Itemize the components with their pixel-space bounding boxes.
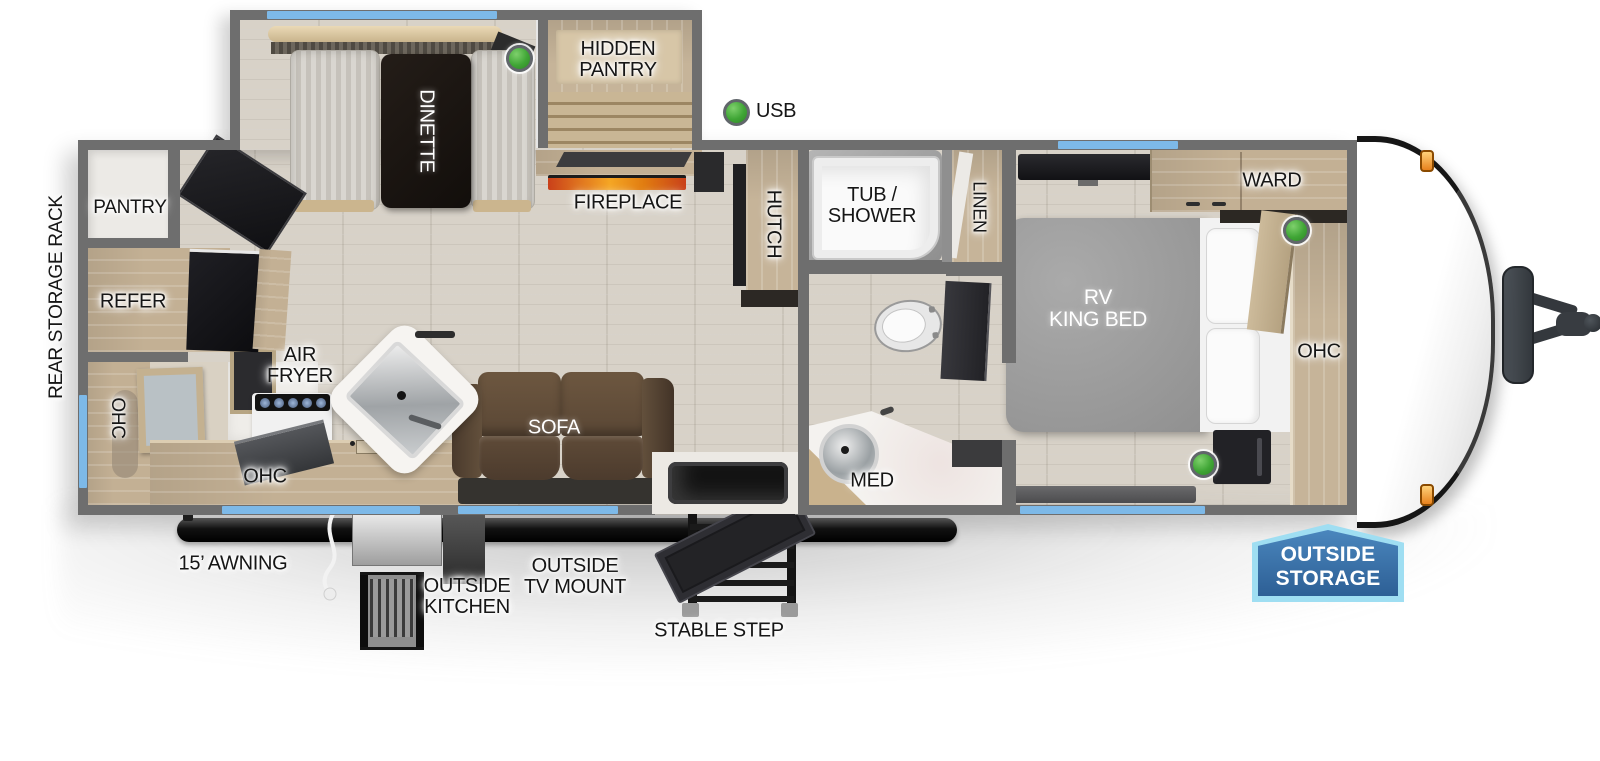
window-bedroom-top — [1058, 141, 1178, 149]
pantry-wall-right — [168, 148, 180, 243]
stable-step-label: STABLE STEP — [654, 621, 784, 642]
ohc-kitchen-label: OHC — [243, 467, 287, 488]
refrigerator — [186, 249, 261, 352]
slide-wall-right — [692, 10, 702, 150]
med-sink-drain — [841, 446, 849, 454]
king-bed-label: RV KING BED — [1049, 287, 1147, 331]
bedroom-tv — [1018, 154, 1156, 180]
window-kitchen-bottom — [222, 506, 420, 514]
marker-light-top — [1420, 150, 1434, 172]
ward-label: WARD — [1242, 171, 1301, 192]
usb-indicator-bed — [1190, 451, 1217, 478]
front-cap — [1357, 136, 1495, 528]
entry-step-well — [668, 462, 788, 504]
usb-indicator-dinette — [506, 45, 533, 72]
dinette-valance — [268, 26, 502, 42]
refer-wall-bottom — [88, 352, 188, 362]
slide-divider — [536, 20, 548, 148]
refer-label: REFER — [100, 292, 166, 313]
wall-front — [1347, 140, 1357, 515]
burner — [288, 398, 298, 408]
island-drain — [397, 391, 406, 400]
hutch-tv-strip — [733, 164, 746, 286]
fireplace-flame — [548, 175, 686, 190]
wall-top-left — [78, 140, 240, 150]
sofa-seat-right — [562, 436, 643, 480]
outside-kitchen-compartment-dark — [443, 510, 485, 584]
window-sofa-bottom — [458, 506, 618, 514]
bathroom-door — [940, 281, 991, 381]
dinette-bench-base — [294, 200, 374, 212]
hutch-base — [741, 290, 803, 307]
hidden-pantry-label: HIDDEN PANTRY — [579, 39, 656, 81]
griddle-slats — [370, 579, 414, 637]
stable-step-foot — [682, 603, 699, 617]
window-rear-side — [79, 395, 87, 488]
toilet-lid — [880, 306, 928, 346]
window-bedroom-bottom — [1020, 506, 1205, 514]
usb-indicator-ward — [1283, 217, 1310, 244]
rv-floorplan: DINETTE HIDDEN PANTRY PANTRY REFER OHC A… — [0, 0, 1600, 761]
fireplace-label: FIREPLACE — [574, 193, 682, 214]
ohc-bedroom-label: OHC — [1297, 342, 1341, 363]
bedroom-ohc-column — [1290, 223, 1350, 505]
slide-wall-left — [230, 10, 240, 150]
toilet-hinge — [929, 306, 936, 313]
outside-storage-badge-inner: OUTSIDE STORAGE — [1258, 530, 1398, 596]
tub-shower-label: TUB / SHOWER — [828, 185, 916, 227]
stable-step-rung — [690, 596, 794, 602]
marker-light-bottom — [1420, 484, 1434, 506]
shower-linen-wall — [942, 150, 952, 262]
bedroom-wall-lower — [1002, 440, 1016, 505]
outside-storage-label: OUTSIDE STORAGE — [1276, 543, 1381, 590]
wall-top-right — [692, 140, 1357, 150]
sofa-seat-left — [479, 436, 560, 480]
hitch-coupler-knob — [1584, 314, 1600, 332]
sofa-platform — [458, 478, 670, 504]
shower-wall-bottom — [806, 260, 946, 274]
entertainment-end-cabinet — [694, 152, 724, 192]
outside-kitchen-label: OUTSIDE KITCHEN — [424, 576, 511, 618]
window-dinette — [267, 11, 497, 19]
fireplace-shelf — [556, 152, 692, 167]
usb-indicator-legend — [723, 99, 750, 126]
air-fryer-label: AIR FRYER — [267, 345, 333, 387]
burner — [316, 398, 326, 408]
nightstand-handle — [1257, 438, 1262, 476]
outside-tv-mount-label: OUTSIDE TV MOUNT — [524, 556, 626, 598]
pantry-wall-bottom — [88, 238, 180, 248]
burner — [260, 398, 270, 408]
awning-label: 15’ AWNING — [179, 554, 288, 575]
ward-handle — [1212, 202, 1226, 206]
rear-storage-rack-label: REAR STORAGE RACK — [47, 177, 67, 417]
bedroom-bench — [1006, 486, 1196, 503]
toilet-hinge — [932, 332, 939, 339]
sofa-label: SOFA — [528, 418, 580, 439]
hitch-jack-bar — [1502, 266, 1534, 384]
ward-handle — [1186, 202, 1200, 206]
dinette-bench-base — [473, 200, 531, 212]
awning-cord — [300, 508, 370, 603]
ohc-rear-label: OHC — [107, 397, 127, 438]
bedroom-wall-upper — [1002, 148, 1016, 363]
stable-step-foot — [781, 603, 798, 617]
hutch-label: HUTCH — [763, 190, 784, 259]
dinette-bench-right — [471, 50, 535, 210]
burner — [274, 398, 284, 408]
med-label: MED — [850, 471, 894, 492]
awning-bar — [177, 518, 957, 542]
bedroom-nightstand — [1213, 430, 1271, 484]
linen-label: LINEN — [970, 181, 989, 233]
pantry-label: PANTRY — [93, 198, 167, 218]
range-burner-bar — [255, 394, 330, 411]
counter-faucet — [350, 441, 355, 446]
burner — [302, 398, 312, 408]
dinette-bench-left — [290, 50, 380, 210]
bedroom-doorway-cabinet — [952, 440, 1002, 467]
dinette-label: DINETTE — [416, 89, 437, 172]
island-handle — [415, 331, 455, 338]
hidden-pantry-shelves — [546, 92, 692, 148]
bedroom-tv-mount — [1078, 180, 1098, 186]
usb-label: USB — [756, 99, 796, 123]
bed-pillow — [1206, 328, 1260, 424]
pantry-room — [88, 150, 168, 240]
bath-wall-left — [798, 148, 809, 505]
